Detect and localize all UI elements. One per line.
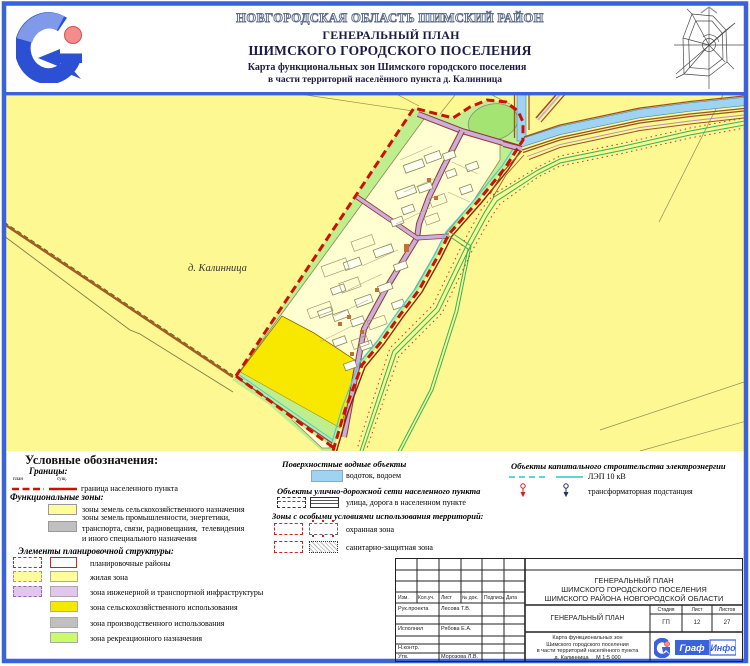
svg-text:д. Калинница: д. Калинница <box>188 263 247 274</box>
svg-text:Инфо: Инфо <box>710 643 736 653</box>
svg-text:Граф: Граф <box>679 643 705 654</box>
